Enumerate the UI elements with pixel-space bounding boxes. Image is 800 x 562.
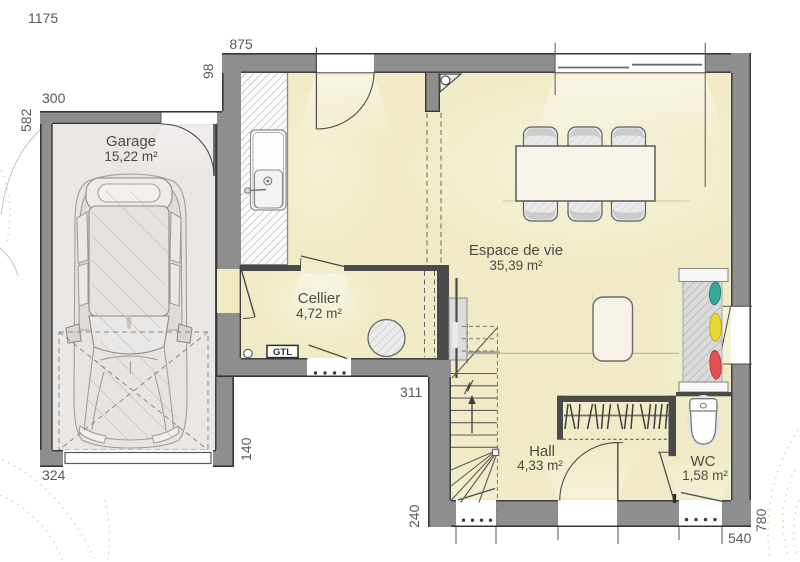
svg-text:Espace de vie: Espace de vie: [469, 242, 563, 259]
svg-text:324: 324: [42, 467, 66, 483]
svg-text:Cellier: Cellier: [298, 290, 341, 307]
svg-text:4,72 m²: 4,72 m²: [296, 306, 342, 321]
svg-text:Garage: Garage: [106, 133, 156, 150]
svg-text:4,33 m²: 4,33 m²: [517, 458, 563, 473]
svg-text:311: 311: [400, 384, 423, 400]
svg-text:15,22 m²: 15,22 m²: [104, 149, 158, 164]
svg-text:GTL: GTL: [273, 347, 292, 358]
svg-text:1175: 1175: [28, 10, 58, 26]
svg-text:140: 140: [238, 437, 254, 461]
svg-text:582: 582: [18, 108, 34, 132]
svg-text:240: 240: [406, 504, 422, 528]
svg-text:875: 875: [229, 36, 253, 52]
svg-text:1,58 m²: 1,58 m²: [682, 468, 728, 483]
svg-text:35,39 m²: 35,39 m²: [489, 258, 543, 273]
svg-text:780: 780: [753, 508, 769, 532]
svg-text:98: 98: [200, 63, 216, 79]
svg-text:300: 300: [42, 90, 66, 106]
svg-text:540: 540: [728, 530, 752, 546]
